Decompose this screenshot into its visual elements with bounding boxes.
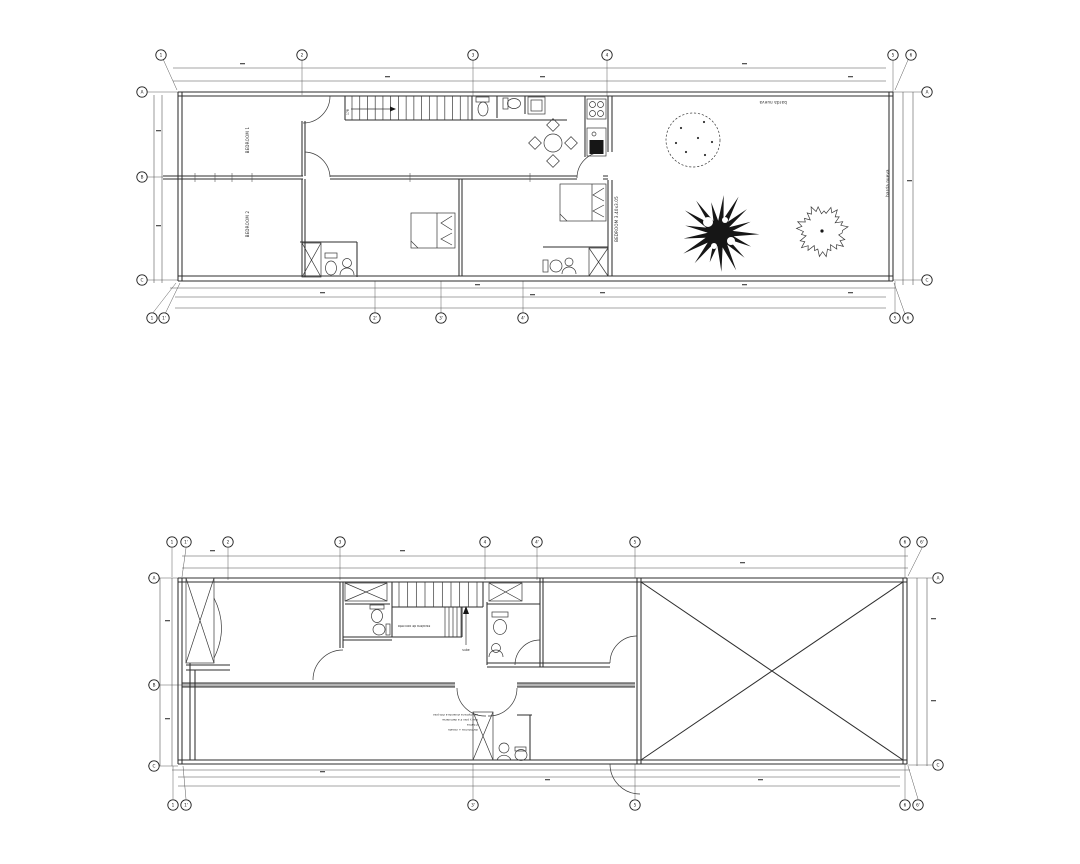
dimension-text [385,76,390,77]
dimension-text [156,225,161,226]
dimension-text [931,700,936,701]
toilet-tank [370,605,384,609]
grid-bubble: 2 [223,537,233,547]
grid-bubble-label: 3' [439,316,443,321]
toilet-bowl [326,261,337,275]
bed-1 [411,213,455,248]
grid-bubble: 6' [917,537,927,547]
door-arcs [303,96,603,178]
chair [547,155,560,168]
grid-bubble-label: 6' [916,803,920,808]
staircase: sube [399,582,477,652]
closet-left [345,583,387,601]
grid-bubble-label: 5 [892,53,895,58]
grid-bubble: 6' [913,800,923,810]
grid-bubble: 4' [518,313,528,323]
grid-bubble-label: A [937,576,940,581]
garden-label: barda nueva [759,100,787,105]
dimension-text [165,718,170,719]
grid-bubble-label: C [153,764,156,769]
chair [547,119,560,132]
grid-bubble: B [137,172,147,182]
remodel-notes: dormitorios + closets 2 baños losa y pis… [433,713,478,732]
bathroom-a [302,243,354,277]
grid-bubble: A [922,87,932,97]
grid-bubble-label: B [153,683,156,688]
grid-bubble-label: 6 [904,803,907,808]
foliage-dot [697,137,699,139]
foliage-dot [675,142,677,144]
grid-bubble: 5 [630,537,640,547]
window-ticks [195,173,530,182]
washer-inner [531,100,542,111]
wash-basin [499,743,509,753]
wall-infill [517,684,635,687]
tree-gap [727,237,735,245]
grid-bubble-label: 1 [172,803,175,808]
grid-bubble-label: 5 [634,540,637,545]
dimension-text [320,292,325,293]
grid-bubble-label: 5 [634,803,637,808]
grid-bubble-label: 2 [301,53,304,58]
dimension-text [848,76,853,77]
stair-note: escalera de concreto [398,624,430,628]
foliage-dot [704,154,706,156]
grid-bubble: C [149,761,159,771]
dimension-text [545,779,550,780]
grid-bubble-label: 1' [184,540,188,545]
toilet2-bowl [508,99,521,109]
toilet2-tank [386,624,390,635]
grid-bubble-label: 5 [894,316,897,321]
kitchen [587,99,606,156]
grid-bubble-label: 3' [471,803,475,808]
bathroom-top [476,97,545,116]
grid-bubble-label: 4 [484,540,487,545]
dimension-text [848,292,853,293]
toilet-tank [543,260,548,272]
washer [528,97,545,114]
toilet-tank [325,253,337,258]
grid-bubble: 6 [906,50,916,60]
toilet2-bowl [373,624,385,635]
dimension-text [240,63,245,64]
faucet [592,132,596,136]
grid-bubble: 6 [903,313,913,323]
stair-dir-label: sube [462,648,470,652]
grid-bubble: 2' [370,313,380,323]
bedroom2-label: BEDROOM 2 [245,210,250,237]
grid-bubble-label: C [937,763,940,768]
dimension-text [165,620,170,621]
cad-drawing-canvas: 17R [0,0,1080,864]
wall-infill [182,684,455,687]
foliage-dot [703,121,705,123]
grid-bubble-label: 1 [160,53,163,58]
wash-basin-rim [562,267,576,274]
grid-bubble: 1' [181,800,191,810]
closet-right [489,583,522,601]
wash-basin-rim [497,755,511,760]
bedroom3-label: BEDROOM 3.40x3.05 [614,196,619,242]
grid-bubble-label: 3 [339,540,342,545]
grid-bubble: 1 [168,800,178,810]
grid-bubble-label: 1' [162,316,166,321]
toilet-tank [476,97,489,102]
door-arc [515,640,540,665]
grid-bubble-label: C [926,278,929,283]
dimension-text [740,562,745,563]
walls [178,578,907,764]
grid-bubble-label: A [926,90,929,95]
grid-bubble-label: 4' [535,540,539,545]
dimension-text [475,284,480,285]
stair-arrow-head [390,107,396,112]
grid-bubbles: 12345611'2'3'4'56ABCAC [137,50,932,323]
bathroom-right [489,612,540,665]
dimension-text [600,292,605,293]
dimension-text [210,550,215,551]
toilet-bowl [478,102,488,116]
grid-bubble: A [149,573,159,583]
grid-bubble: 1 [156,50,166,60]
staircase: 17R [346,96,468,120]
grid-bubble: 4 [602,50,612,60]
grid-bubble: 5 [630,800,640,810]
grid-bubble-label: B [141,175,144,180]
note-line: dormitorios + closets [448,728,478,732]
dimension-text [742,284,747,285]
grid-bubble-label: A [153,576,156,581]
wash-basin [343,259,352,268]
grid-bubble-label: 6 [904,540,907,545]
grid-bubble-label: 4' [521,316,525,321]
grid-bubble-label: 6' [920,540,924,545]
grid-bubble: 4' [532,537,542,547]
grid-bubble: 3' [468,800,478,810]
walls [163,92,893,281]
grid-bubble-label: 1 [171,540,174,545]
bay-window-curve [214,598,222,658]
chair [565,137,578,150]
grid-bubble: 5 [890,313,900,323]
garden [666,113,848,272]
tree-gap [711,243,717,249]
grid-bubble-label: A [141,90,144,95]
note-line: 2 baños [466,723,478,727]
toilet-tank [492,612,508,617]
dimension-text [907,180,912,181]
note-line: losa y piso 2 a demolerse [442,718,478,722]
dimension-text [742,63,747,64]
dimension-text [931,618,936,619]
grid-bubble-label: 2' [373,316,377,321]
foliage-dot [680,127,682,129]
grid-bubble: 5 [888,50,898,60]
ground-floor-plan: 17R [137,50,932,323]
tree-gap [703,217,713,227]
wash-basin [565,258,573,266]
wash-basin-rim [340,268,354,275]
grid-bubble: 4 [480,537,490,547]
grid-bubble: 3' [436,313,446,323]
grid-bubble: 3 [468,50,478,60]
grid-bubble: 2 [297,50,307,60]
grid-bubble: 1 [167,537,177,547]
chair [529,137,542,150]
bathroom-mid [370,605,390,635]
kitchen-sink-basin [590,140,604,154]
grid-bubble-label: 3 [472,53,475,58]
grid-bubble-label: 1' [184,803,188,808]
dimension-text [320,771,325,772]
grid-bubble: C [933,760,943,770]
bay-column [186,578,222,663]
foliage-dot [711,141,713,143]
tree-spiky-center [820,229,823,232]
grid-bubble: A [933,573,943,583]
grid-bubble: C [137,275,147,285]
dimension-text-marks [165,550,936,780]
dimension-text [758,779,763,780]
grid-bubble: C [922,275,932,285]
bedroom1-label: BEDROOM 1 [245,126,250,153]
dining-set [529,119,578,168]
grid-bubble-label: 6 [910,53,913,58]
toilet-bowl [494,620,507,635]
tree-gap [722,217,728,223]
dimension-rails [154,68,913,308]
void-cross [641,582,903,760]
foliage-dot [685,151,687,153]
grid-bubble: 1' [159,313,169,323]
bathroom-lower [473,712,527,761]
tree-outline [666,113,720,167]
grid-bubble-label: 4 [606,53,609,58]
wash-basin [492,644,501,653]
stove [587,99,606,119]
grid-bubble: B [149,680,159,690]
stair-riser-label: 17R [346,108,350,115]
dimension-text [156,130,161,131]
grid-bubble: A [137,87,147,97]
dimension-text [400,550,405,551]
grid-bubble: 6 [900,800,910,810]
dimension-text [540,76,545,77]
bed-2 [560,184,606,221]
tree-dense [683,195,759,272]
grid-bubble-label: 1 [151,316,154,321]
upper-floor-plan: sube escalera de concreto dormitorios + … [148,537,943,810]
tree-foliage-dots [675,121,713,156]
grid-bubble: 1' [181,537,191,547]
note-line: se amplia la vivienda a 2do piso [433,713,478,717]
grid-bubble: 1 [147,313,157,323]
grid-bubble: 3 [335,537,345,547]
toilet-bowl [372,610,383,623]
bathroom-b [543,248,608,276]
toilet-bowl [550,260,562,272]
grid-bubble-label: 6 [907,316,910,321]
dimension-text [530,294,535,295]
dining-table [544,134,562,152]
grid-bubble-label: 2 [227,540,230,545]
garden-side-label: barda nueva [885,169,890,197]
grid-bubble: 6 [900,537,910,547]
wash-basin-rim [489,650,503,657]
grid-bubble-label: C [141,278,144,283]
